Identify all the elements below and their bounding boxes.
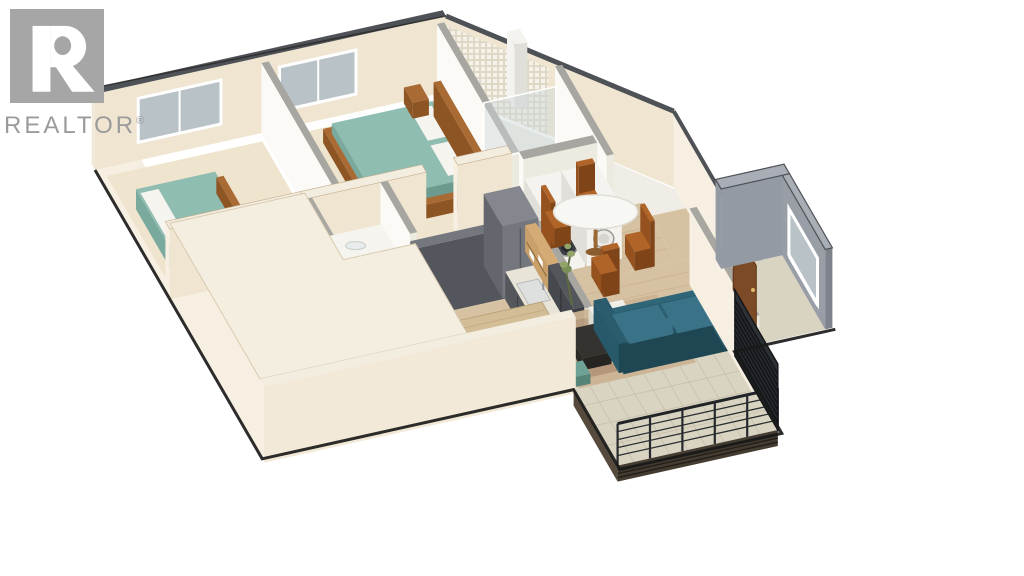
floorplan-image: REALTOR® <box>0 0 1024 576</box>
realtor-wordmark: REALTOR® <box>4 112 174 140</box>
realtor-logo: REALTOR® <box>4 8 174 140</box>
realtor-r-icon <box>10 8 104 104</box>
